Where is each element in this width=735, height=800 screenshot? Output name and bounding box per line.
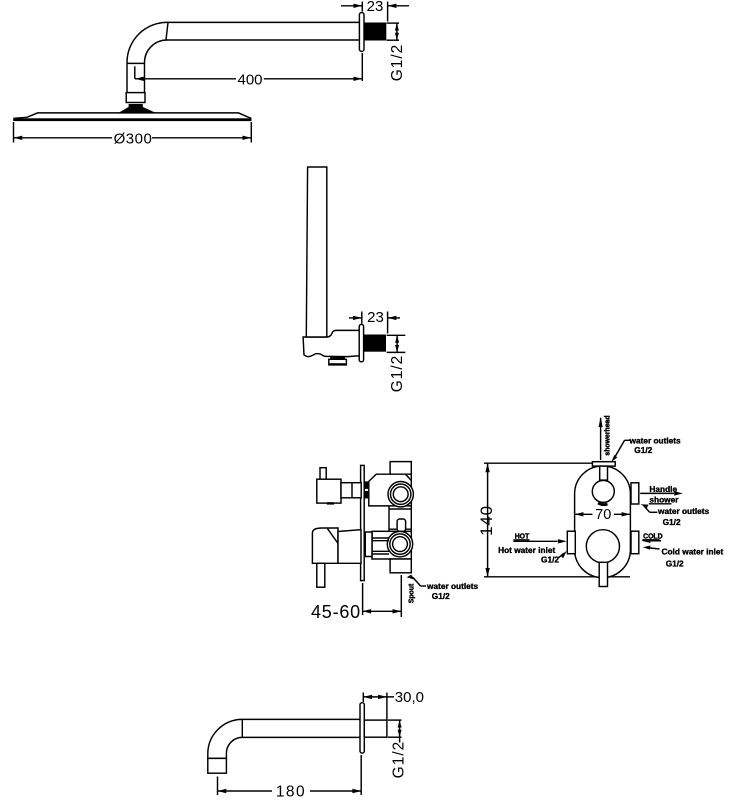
svg-text:23: 23 [367, 309, 384, 326]
svg-text:400: 400 [237, 71, 262, 88]
svg-text:180: 180 [276, 783, 306, 800]
svg-text:G1/2: G1/2 [634, 445, 652, 455]
svg-text:shower: shower [649, 494, 679, 504]
svg-text:140: 140 [477, 505, 496, 536]
svg-text:Ø300: Ø300 [114, 131, 153, 148]
svg-text:G1/2: G1/2 [541, 555, 559, 565]
svg-text:G1/2: G1/2 [389, 355, 406, 393]
svg-text:water outlets: water outlets [657, 506, 710, 516]
svg-text:45-60: 45-60 [311, 602, 361, 622]
svg-text:Hot water inlet: Hot water inlet [498, 545, 555, 555]
svg-text:water outlets: water outlets [426, 581, 479, 591]
svg-text:Spout: Spout [408, 583, 415, 603]
svg-text:70: 70 [595, 507, 611, 523]
svg-text:G1/2: G1/2 [663, 517, 681, 527]
svg-text:G1/2: G1/2 [391, 741, 408, 779]
svg-text:30,0: 30,0 [395, 689, 424, 706]
svg-text:23: 23 [367, 0, 384, 15]
svg-text:G1/2: G1/2 [389, 44, 406, 82]
svg-text:showerhead: showerhead [604, 415, 611, 455]
svg-text:G1/2: G1/2 [432, 591, 450, 601]
svg-text:G1/2: G1/2 [666, 558, 684, 568]
svg-text:water outlets: water outlets [629, 435, 682, 445]
svg-text:Cold water inlet: Cold water inlet [662, 547, 724, 557]
